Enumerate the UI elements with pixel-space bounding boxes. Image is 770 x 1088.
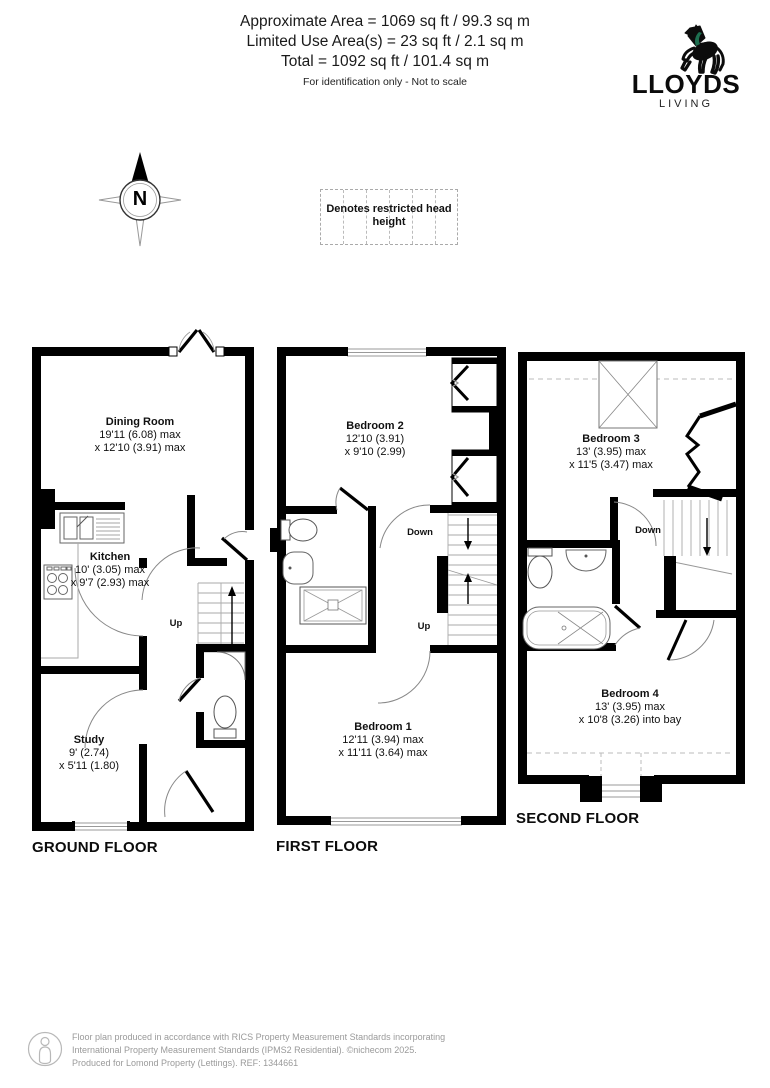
gf-hob [44,565,72,599]
scale-disclaimer: For identification only - Not to scale [150,76,620,88]
ff-bedroom1-door-arc [378,651,430,703]
room-label-kitchen: Kitchen 10' (3.05) max x 9'7 (2.93) max [71,551,150,590]
sf-bathroom [518,540,640,651]
ff-window-bottom [328,815,464,826]
gf-toilet [214,696,236,728]
gf-stairs-arrow [228,586,236,596]
sf-toilet [528,556,552,588]
approximate-area: Approximate Area = 1069 sq ft / 99.3 sq … [150,12,620,32]
sf-cupboard-door-arc [668,620,714,660]
ff-wardrobe-1 [452,358,497,412]
area-summary: Approximate Area = 1069 sq ft / 99.3 sq … [150,12,620,88]
room-label-bedroom3: Bedroom 3 13' (3.95) max x 11'5 (3.47) m… [569,433,653,472]
room-label-bedroom2: Bedroom 2 12'10 (3.91) x 9'10 (2.99) [345,420,406,459]
ff-toilet [289,519,317,541]
limited-use-area: Limited Use Area(s) = 23 sq ft / 2.1 sq … [150,32,620,52]
footer-line-3: Produced for Lomond Property (Lettings).… [72,1057,502,1070]
sf-down-label: Down [635,525,661,536]
first-floor-title: FIRST FLOOR [276,838,378,855]
ff-down-label: Down [407,527,433,538]
ff-up-label: Up [418,621,431,632]
ff-stairs [448,513,497,645]
room-label-study: Study 9' (2.74) x 5'11 (1.80) [59,734,119,773]
gf-wc [179,644,254,748]
floorplan-graphics [0,0,770,1088]
ff-sink [283,552,313,584]
ff-shower [300,587,366,624]
sf-rooflight [599,361,657,428]
room-label-bedroom4: Bedroom 4 13' (3.95) max x 10'8 (3.26) i… [579,688,681,727]
gf-kitchen-sink [60,513,124,543]
sf-sink [566,550,606,571]
lloyds-living-logo: LLOYDS LIVING [610,20,762,110]
gf-stairs [198,583,244,652]
room-label-dining: Dining Room 19'11 (6.08) max x 12'10 (3.… [95,416,186,455]
ff-wardrobe-2 [452,450,497,508]
person-scale-icon [29,1033,62,1066]
ff-window-top [345,346,429,357]
sf-wardrobe [684,404,736,499]
restricted-head-height-text: Denotes restricted head height [321,203,457,229]
logo-sub-text: LIVING [610,98,762,110]
gf-window [72,820,130,832]
total-area: Total = 1092 sq ft / 101.4 sq m [150,52,620,72]
sf-bedroom3-door-arc [614,502,656,546]
sf-bay-window [580,776,662,802]
logo-brand-text: LLOYDS [610,72,762,96]
floorplan-page: Approximate Area = 1069 sq ft / 99.3 sq … [0,0,770,1088]
gf-french-doors [169,330,224,356]
footer-disclaimer: Floor plan produced in accordance with R… [72,1031,502,1070]
ground-floor-title: GROUND FLOOR [32,839,158,856]
gf-up-label: Up [170,618,183,629]
second-floor-plan [518,352,745,802]
compass-north-label: N [128,188,152,211]
footer-line-1: Floor plan produced in accordance with R… [72,1031,502,1044]
footer-line-2: International Property Measurement Stand… [72,1044,502,1057]
sf-bath [523,607,610,649]
room-label-bedroom1: Bedroom 1 12'11 (3.94) max x 11'11 (3.64… [338,721,427,760]
restricted-head-height-legend: Denotes restricted head height [320,189,458,245]
ff-bathroom [277,488,376,653]
gf-corner-sink [217,652,245,680]
second-floor-title: SECOND FLOOR [516,810,639,827]
